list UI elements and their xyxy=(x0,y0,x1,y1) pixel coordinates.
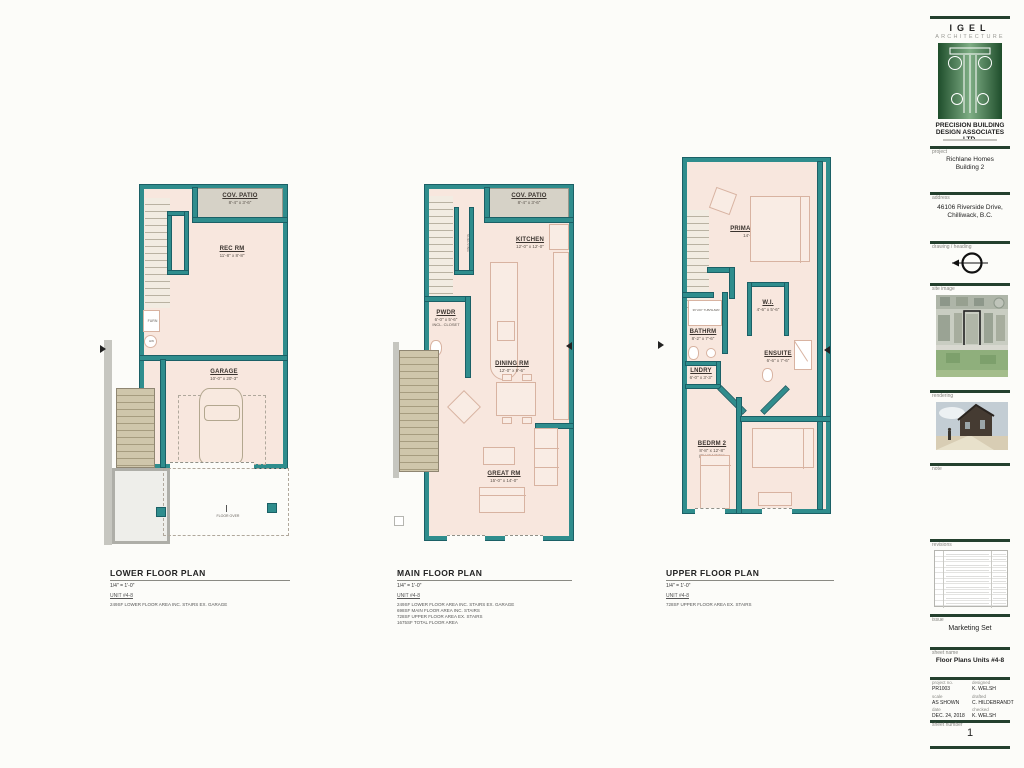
section-label-issue: issue xyxy=(932,617,944,623)
shelving-label: SHELVING xyxy=(459,220,469,266)
value-checked: K. WELSH xyxy=(972,713,996,719)
project-building: Building 2 xyxy=(930,164,1010,171)
dining-table xyxy=(496,382,536,416)
sofa-line xyxy=(480,495,526,496)
section-label-site-image: site image xyxy=(932,286,955,292)
pillow-line xyxy=(800,197,801,263)
project-name: Richlane Homes xyxy=(930,156,1010,163)
section-label-sheet-name: sheet name xyxy=(932,650,958,656)
room-label-bathrm: BATHRM 8'-2" x 7'-6" xyxy=(668,329,738,342)
plan-title: MAIN FLOOR PLAN xyxy=(397,568,572,581)
section-marker xyxy=(100,345,106,353)
value-designed: K. WELSH xyxy=(972,686,996,692)
plan-scale: 1/4" = 1'-0" xyxy=(397,583,572,589)
wall-segment xyxy=(741,417,830,421)
issue-value: Marketing Set xyxy=(930,625,1010,632)
media-unit xyxy=(534,428,558,486)
floor-over-dashed xyxy=(163,468,289,536)
drawing-sheet: COV. PATIO 8'-4" x 3'-6" REC RM 11'-8" x… xyxy=(0,0,1024,768)
value-project-no: PR1003 xyxy=(932,686,950,692)
window-opening xyxy=(695,508,725,515)
shelf-line xyxy=(535,467,559,468)
wall-segment xyxy=(683,293,713,297)
plan-unit: UNIT #4-8 xyxy=(397,593,572,599)
exterior-stairs xyxy=(116,388,155,468)
value-date: DEC. 24, 2018 xyxy=(932,713,965,719)
post xyxy=(268,504,276,512)
bed-3 xyxy=(752,428,814,468)
furnace-label: FURN xyxy=(144,319,161,323)
chair xyxy=(502,417,512,424)
column-logo xyxy=(938,43,1002,119)
wall-segment xyxy=(470,208,473,274)
chair xyxy=(522,374,532,381)
car-outline xyxy=(199,388,243,466)
kitchen-counter xyxy=(553,252,569,420)
site-marker xyxy=(394,516,404,526)
upper-plan-caption: UPPER FLOOR PLAN 1/4" = 1'-0" UNIT #4-8 … xyxy=(666,568,834,608)
room-label-great-rm: GREAT RM 15'-0" x 14'-0" xyxy=(469,471,539,484)
north-arrow-icon xyxy=(950,250,990,276)
site-aerial-image xyxy=(936,295,1008,377)
revisions-entries xyxy=(946,552,989,607)
wall-segment xyxy=(485,218,573,222)
sofa xyxy=(479,487,525,513)
sheet-number-value: 1 xyxy=(930,727,1010,739)
plan-title: LOWER FLOOR PLAN xyxy=(110,568,290,581)
room-label-garage: GARAGE 10'-0" x 20'-3" xyxy=(189,369,259,382)
entry-landing xyxy=(112,468,170,544)
value-scale: AS SHOWN xyxy=(932,700,959,706)
room-label-rec-rm: REC RM 11'-8" x 8'-8" xyxy=(197,246,267,259)
address-line2: Chilliwack, B.C. xyxy=(930,212,1010,219)
firm-name: IGEL xyxy=(930,23,1010,33)
fridge xyxy=(549,224,569,250)
wall-segment xyxy=(723,293,727,353)
label-scale: scale xyxy=(932,694,943,699)
value-drafted: C. HILDEBRANDT xyxy=(972,700,1014,706)
floor-over-note: FLOOR OVER xyxy=(206,514,250,518)
section-marker xyxy=(566,342,572,350)
bathtub: 36"x60" TUB/SHWR xyxy=(688,300,722,326)
chair xyxy=(502,374,512,381)
window-opening xyxy=(762,508,792,515)
window-opening xyxy=(505,535,543,542)
party-wall xyxy=(818,162,822,509)
section-label-rendering: rendering xyxy=(932,393,953,399)
rendering-image xyxy=(936,402,1008,450)
label-designed: designed xyxy=(972,680,990,685)
plan-note: 728SF UPPER FLOOR AREA EX. STAIRS xyxy=(666,602,834,608)
wall-segment xyxy=(185,212,188,274)
wall-segment xyxy=(455,208,458,274)
dresser xyxy=(758,492,792,506)
plan-scale: 1/4" = 1'-0" xyxy=(666,583,834,589)
lower-plan-caption: LOWER FLOOR PLAN 1/4" = 1'-0" UNIT #4-8 … xyxy=(110,568,290,608)
shelf-line xyxy=(535,448,559,449)
shower xyxy=(794,340,812,370)
wall-segment xyxy=(686,362,720,365)
label-date: date xyxy=(932,707,941,712)
plan-unit: UNIT #4-8 xyxy=(666,593,834,599)
wall-segment xyxy=(748,283,788,286)
shower-line xyxy=(794,341,808,362)
floor-over-arrow xyxy=(226,505,227,512)
toilet xyxy=(762,368,773,382)
room-label-cov-patio: COV. PATIO 8'-4" x 3'-6" xyxy=(494,193,564,206)
room-label-cov-patio: COV. PATIO 8'-4" x 3'-6" xyxy=(205,193,275,206)
wall-segment xyxy=(466,297,470,377)
revisions-col-line xyxy=(943,551,944,608)
pillow-line xyxy=(701,465,731,466)
firm-type: ARCHITECTURE xyxy=(930,34,1010,40)
window-opening xyxy=(447,535,485,542)
divider-bar xyxy=(930,746,1010,749)
sheet-name-value: Floor Plans Units #4-8 xyxy=(930,657,1010,664)
plan-scale: 1/4" = 1'-0" xyxy=(110,583,290,589)
wall-segment xyxy=(161,360,165,467)
wall-segment xyxy=(455,271,473,274)
room-label-lndry: LNDRY 6'-0" x 3'-3" xyxy=(666,368,736,381)
post xyxy=(157,508,165,516)
label-checked: checked xyxy=(972,707,989,712)
revisions-col-line xyxy=(991,551,992,608)
section-label-note: note xyxy=(932,466,942,472)
island-sink xyxy=(497,321,515,341)
wall-segment xyxy=(193,188,197,222)
exterior-stairs xyxy=(399,350,439,472)
wall-segment xyxy=(425,297,470,301)
section-label-address: address xyxy=(932,195,950,201)
company-address-fineprint xyxy=(943,139,997,141)
wall-segment xyxy=(485,188,489,222)
toilet xyxy=(688,346,699,360)
car-windshield xyxy=(204,405,240,421)
retaining-wall xyxy=(104,340,112,545)
section-label-revisions: revisions xyxy=(932,542,952,548)
section-label-project: project xyxy=(932,149,947,155)
room-label-dining: DINING RM 12'-0" x 9'-6" xyxy=(477,361,547,374)
revisions-table xyxy=(934,550,1008,607)
wall-segment xyxy=(193,218,287,222)
interior-stairs xyxy=(145,198,170,308)
main-plan-caption: MAIN FLOOR PLAN 1/4" = 1'-0" UNIT #4-8 2… xyxy=(397,568,572,626)
plan-notes: 249SF LOWER FLOOR AREA INC. STAIRS EX. G… xyxy=(397,602,572,626)
section-marker xyxy=(658,341,664,349)
wall-segment xyxy=(686,385,720,388)
wall-segment xyxy=(730,268,734,298)
label-drafted: drafted xyxy=(972,694,986,699)
chair xyxy=(522,417,532,424)
company-name-1: PRECISION BUILDING xyxy=(930,122,1010,129)
revisions-dates xyxy=(993,552,1006,607)
plan-note: 249SF LOWER FLOOR AREA INC. STAIRS EX. G… xyxy=(110,602,290,608)
section-marker xyxy=(824,346,830,354)
divider-bar xyxy=(930,16,1010,19)
tub-label: 36"x60" TUB/SHWR xyxy=(690,309,722,313)
coffee-table xyxy=(483,447,515,465)
plan-title: UPPER FLOOR PLAN xyxy=(666,568,834,581)
interior-stairs xyxy=(429,196,453,301)
plan-unit: UNIT #4-8 xyxy=(110,593,290,599)
sink xyxy=(706,348,716,358)
address-line1: 46106 Riverside Drive, xyxy=(930,204,1010,211)
hot-water-tank: HW xyxy=(144,335,157,348)
room-label-wi: W.I. 4'-6" x 5'-6" xyxy=(733,300,803,313)
pillow-line xyxy=(803,429,804,469)
wall-segment xyxy=(168,271,188,274)
bed-primary xyxy=(750,196,810,262)
room-label-pwdr: PWDR 6'-0" x 5'-6" INCL. CLOSET xyxy=(411,310,481,327)
hw-label: HW xyxy=(145,340,158,344)
label-project-no: project no. xyxy=(932,680,953,685)
wall-segment xyxy=(168,212,171,274)
furnace: FURN xyxy=(143,310,160,332)
divider-bar xyxy=(930,463,1010,466)
bed-2 xyxy=(700,455,730,509)
